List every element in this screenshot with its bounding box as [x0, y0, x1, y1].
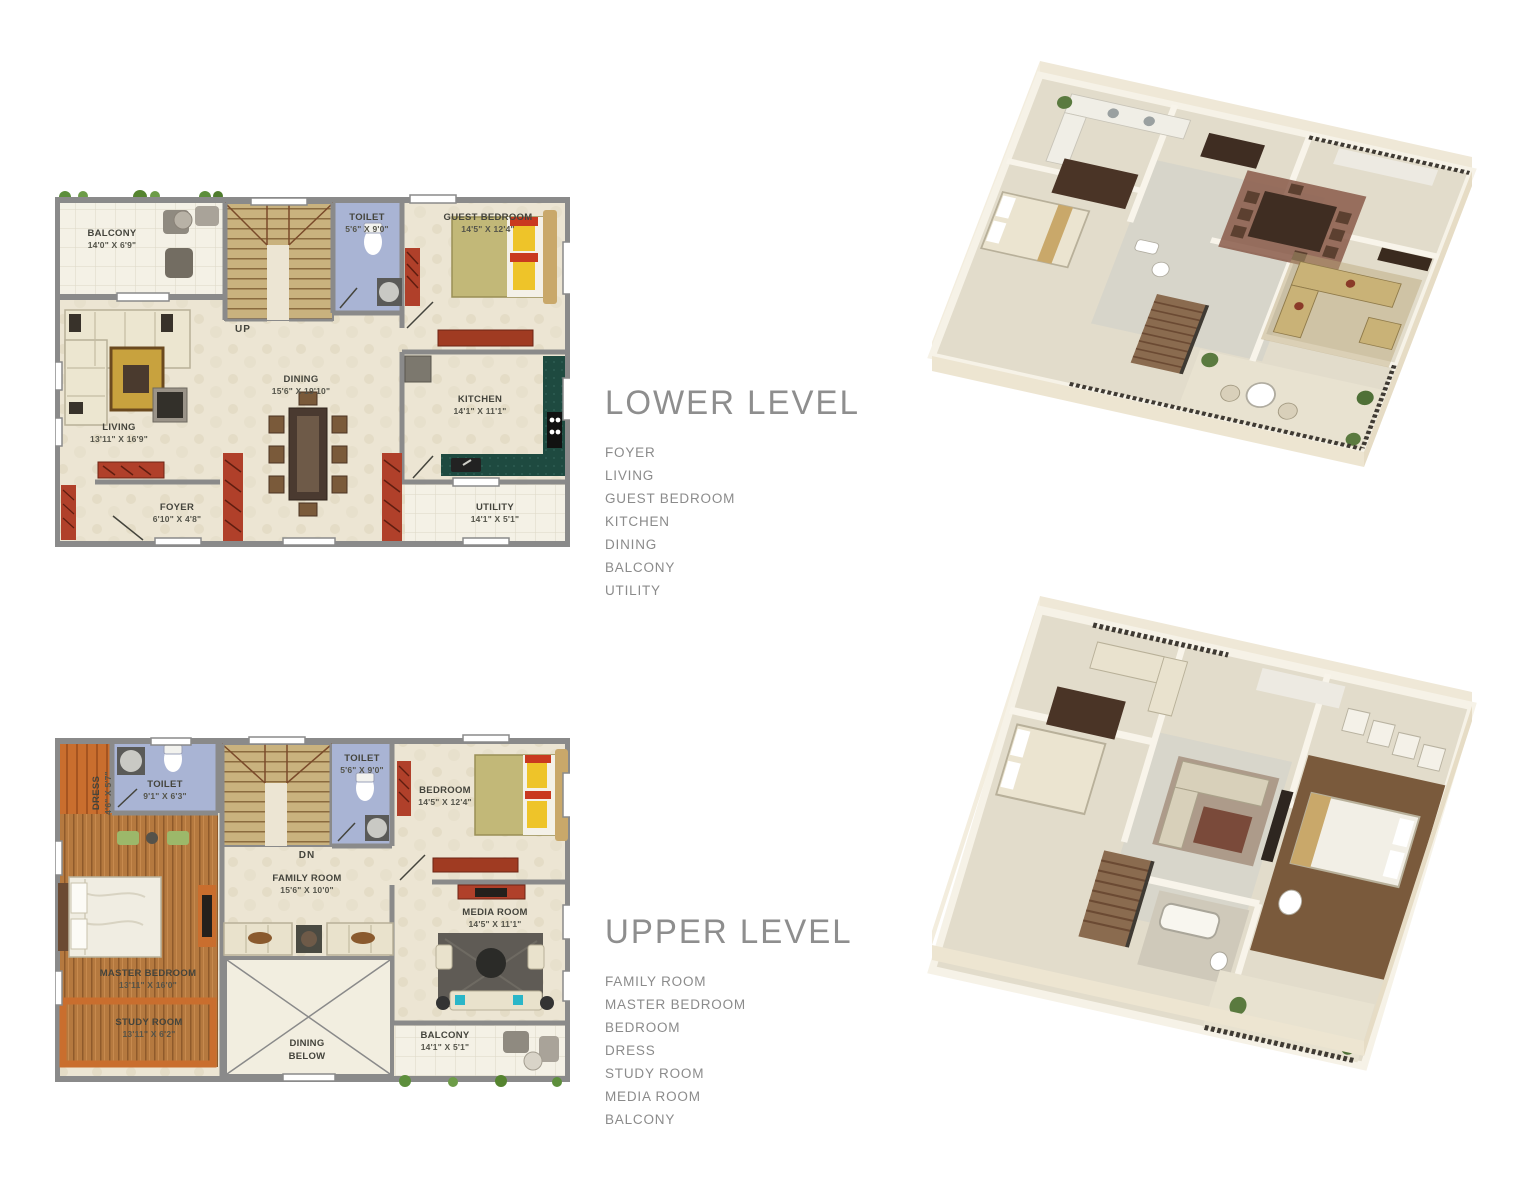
label-media-room-dim: 14'5" X 11'1" [469, 919, 522, 929]
label-kitchen-dim: 14'1" X 11'1" [454, 406, 507, 416]
upper-room-item: BEDROOM [605, 1016, 905, 1039]
upper-room-item: MEDIA ROOM [605, 1085, 905, 1108]
upper-room-item: DRESS [605, 1039, 905, 1062]
label-toilet-right: TOILET [344, 753, 379, 764]
label-family-room-dim: 15'6" X 10'0" [280, 885, 333, 895]
lower-level-3d-render [890, 55, 1535, 520]
label-toilet: TOILET [349, 212, 384, 223]
lower-room-item: KITCHEN [605, 510, 905, 533]
stairs-up [225, 198, 333, 320]
label-living-dim: 13'11" X 16'9" [90, 434, 148, 444]
label-dining: DINING [283, 374, 318, 385]
upper-room-item: FAMILY ROOM [605, 970, 905, 993]
lower-room-item: GUEST BEDROOM [605, 487, 905, 510]
label-kitchen: KITCHEN [458, 394, 502, 405]
label-master-bedroom: MASTER BEDROOM [100, 968, 197, 979]
label-foyer: FOYER [160, 502, 194, 513]
label-media-room: MEDIA ROOM [462, 907, 527, 918]
upper-level-floorplan: TOILET 9'1" X 6'3" TOILET 5'6" X 9'0" BE… [55, 733, 570, 1105]
upper-room-item: STUDY ROOM [605, 1062, 905, 1085]
label-toilet-left-dim: 9'1" X 6'3" [143, 791, 187, 801]
label-bedroom: BEDROOM [419, 785, 471, 796]
label-dn: DN [299, 850, 315, 861]
toilet-left-room [112, 738, 218, 813]
label-bedroom-dim: 14'5" X 12'4" [418, 797, 471, 807]
label-living: LIVING [102, 422, 135, 433]
upper-level-3d-render [890, 585, 1535, 1105]
lower-room-item: LIVING [605, 464, 905, 487]
label-balcony-dim: 14'1" X 5'1" [421, 1042, 470, 1052]
label-balcony: BALCONY [87, 228, 136, 239]
label-balcony-dim: 14'0" X 6'9" [88, 240, 137, 250]
family-room [224, 923, 393, 955]
lower-level-room-list: FOYER LIVING GUEST BEDROOM KITCHEN DININ… [605, 441, 905, 602]
label-dress-dim: 4'6" X 5'7" [103, 771, 113, 815]
label-master-bedroom-dim: 13'11" X 16'0" [119, 980, 177, 990]
label-toilet-right-dim: 5'6" X 9'0" [340, 765, 384, 775]
label-dining-dim: 15'6" X 19'10" [272, 386, 330, 396]
label-utility: UTILITY [476, 502, 514, 513]
label-dining-below-1: DINING [289, 1038, 324, 1049]
label-up: UP [235, 324, 251, 335]
lower-level-floorplan: BALCONY 14'0" X 6'9" TOILET 5'6" X 9'0" … [55, 190, 570, 564]
label-study-room-dim: 13'11" X 6'2" [123, 1029, 176, 1039]
dining-below-void [225, 958, 392, 1081]
label-study-room: STUDY ROOM [115, 1017, 182, 1028]
stairs-down [222, 737, 332, 846]
label-dining-below-2: BELOW [289, 1051, 326, 1062]
balcony-room [60, 203, 225, 301]
upper-level-room-list: FAMILY ROOM MASTER BEDROOM BEDROOM DRESS… [605, 970, 905, 1131]
label-guest-bedroom-dim: 14'5" X 12'4" [461, 224, 514, 234]
lower-level-text-block: LOWER LEVEL FOYER LIVING GUEST BEDROOM K… [605, 383, 905, 602]
lower-room-item: DINING [605, 533, 905, 556]
lower-level-title: LOWER LEVEL [605, 383, 905, 423]
label-balcony: BALCONY [420, 1030, 469, 1041]
lower-room-item: BALCONY [605, 556, 905, 579]
upper-room-item: BALCONY [605, 1108, 905, 1131]
lower-room-item: FOYER [605, 441, 905, 464]
label-family-room: FAMILY ROOM [272, 873, 341, 884]
label-toilet-dim: 5'6" X 9'0" [345, 224, 389, 234]
label-guest-bedroom: GUEST BEDROOM [444, 212, 533, 223]
label-toilet-left: TOILET [147, 779, 182, 790]
upper-level-text-block: UPPER LEVEL FAMILY ROOM MASTER BEDROOM B… [605, 912, 905, 1131]
label-dress: DRESS [91, 776, 102, 810]
label-utility-dim: 14'1" X 5'1" [471, 514, 520, 524]
label-foyer-dim: 6'10" X 4'8" [153, 514, 202, 524]
lower-room-item: UTILITY [605, 579, 905, 602]
upper-level-title: UPPER LEVEL [605, 912, 905, 952]
upper-room-item: MASTER BEDROOM [605, 993, 905, 1016]
